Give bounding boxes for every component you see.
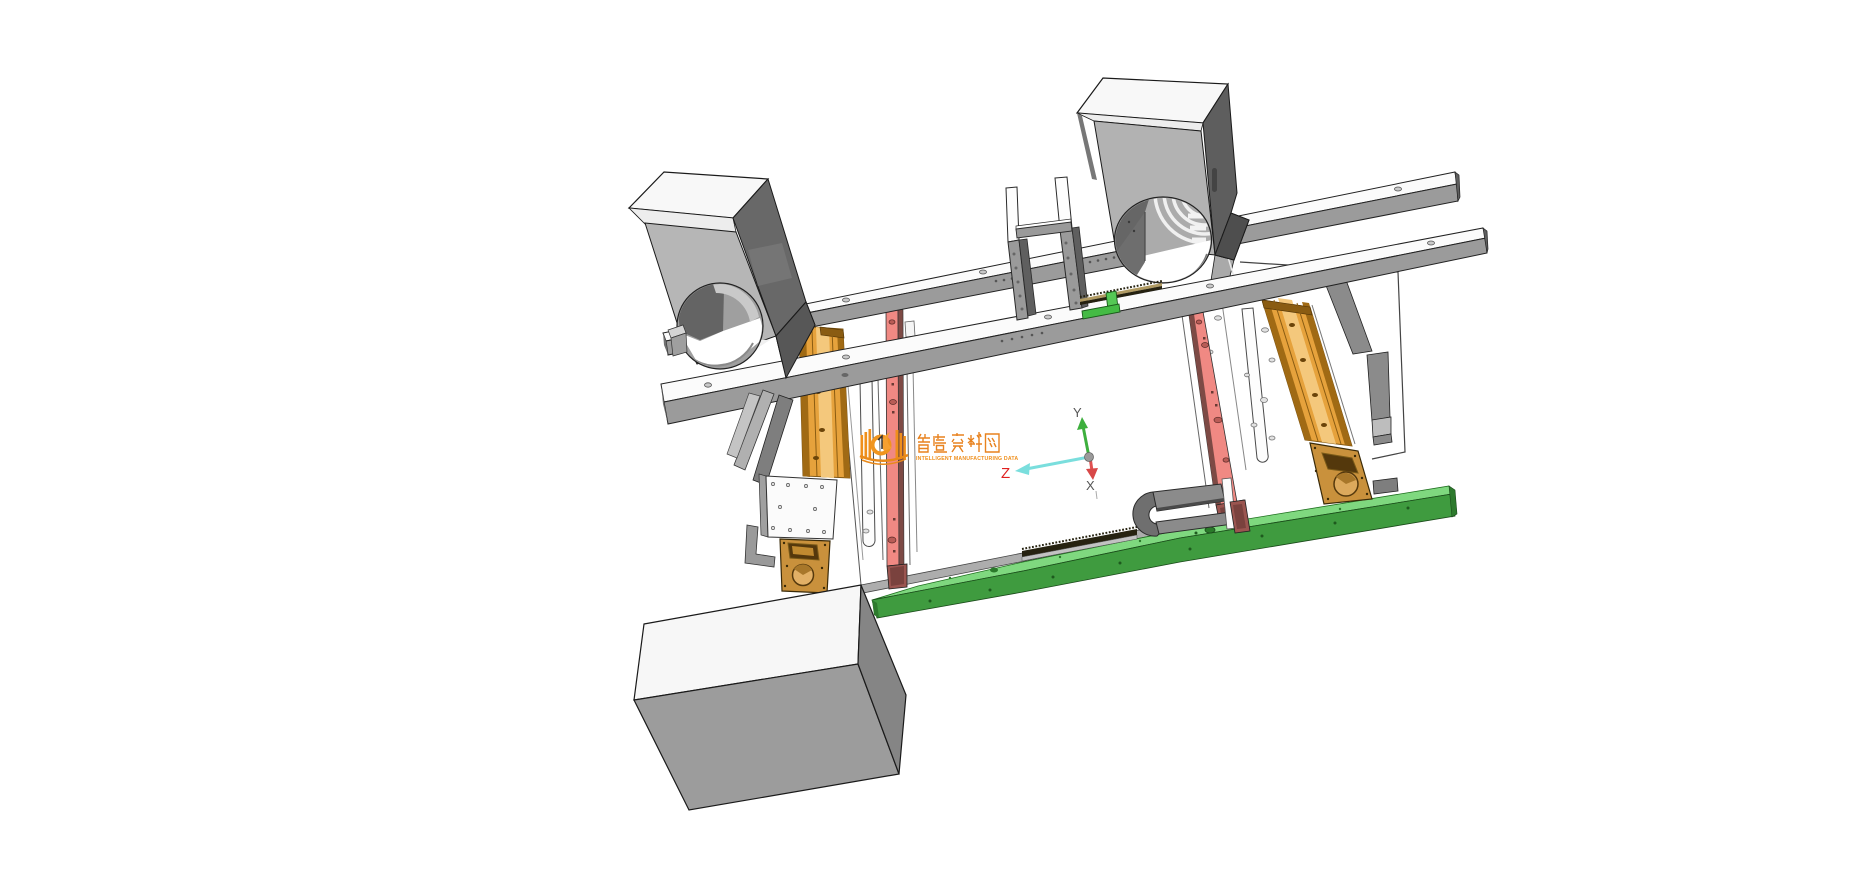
- svg-text:Y: Y: [1073, 405, 1082, 420]
- svg-text:X: X: [1086, 478, 1095, 493]
- svg-text:Z: Z: [1001, 465, 1010, 482]
- svg-text:INTELLIGENT MANUFACTURING DATA: INTELLIGENT MANUFACTURING DATA: [916, 456, 1018, 462]
